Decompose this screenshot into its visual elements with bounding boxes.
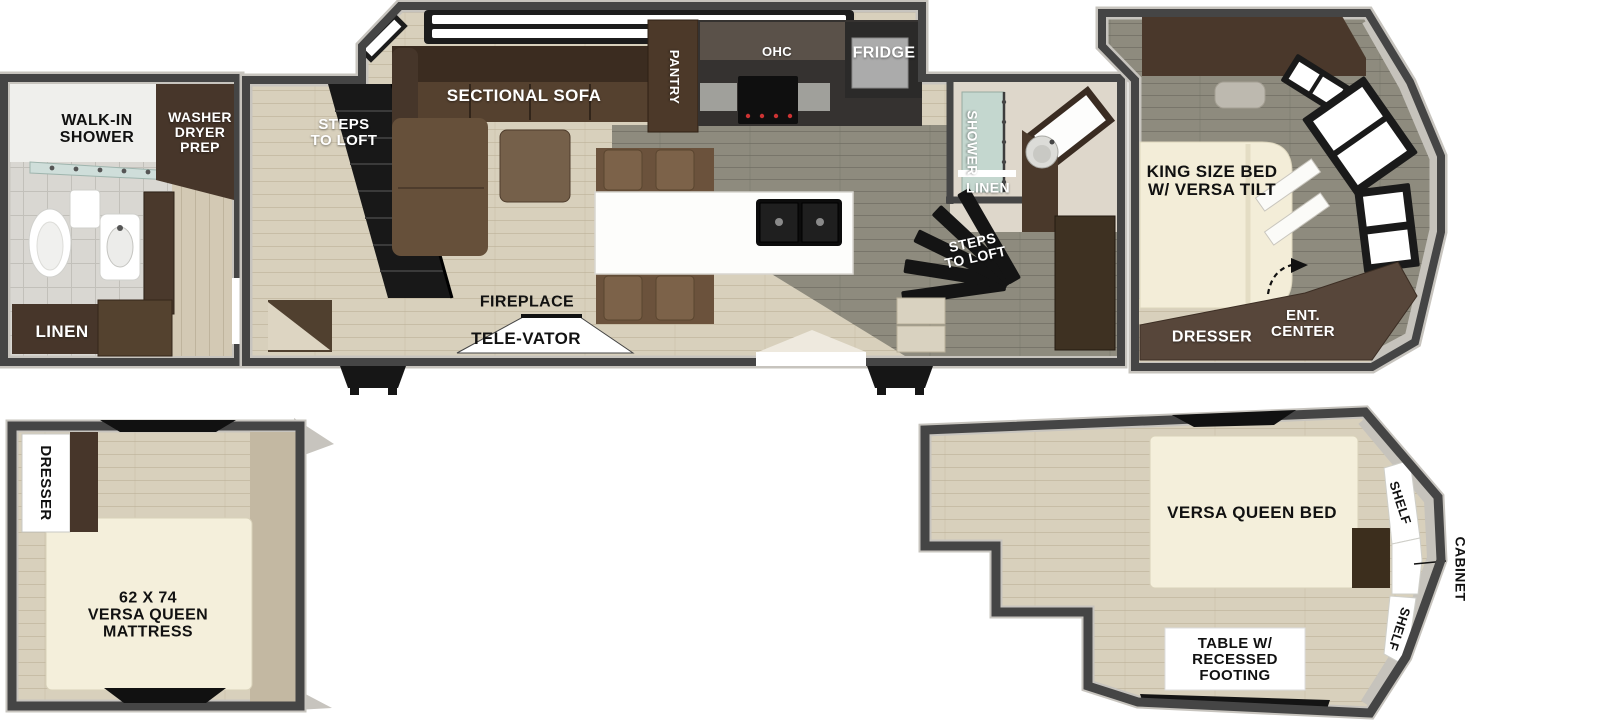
label-linen-rear: LINEN — [36, 323, 89, 341]
label-dresser-main: DRESSER — [1172, 330, 1252, 347]
pedestal-sink-icon — [100, 214, 140, 280]
label-linen-mid: LINEN — [966, 181, 1010, 196]
label-ohc: OHC — [762, 45, 792, 59]
rear-loft-stair-opening-top — [100, 420, 236, 432]
floorplan-canvas — [0, 0, 1600, 720]
rear-loft-stair-opening-bottom — [104, 688, 226, 703]
label-fridge: FRIDGE — [853, 46, 916, 63]
label-shower-mid: SHOWER — [965, 110, 980, 175]
wardrobe-cabinet — [1055, 216, 1115, 350]
label-fireplace: FIREPLACE — [480, 295, 574, 312]
label-cabinet: CABINET — [1453, 536, 1468, 601]
pillow-icon — [1215, 82, 1265, 108]
double-sink-icon — [756, 199, 842, 246]
label-sectional-sofa: SECTIONAL SOFA — [447, 87, 602, 105]
bedroom-overhead-cabinet — [1142, 16, 1366, 76]
round-sink-icon — [1026, 136, 1058, 168]
stove-icon — [738, 76, 798, 124]
label-ent-center: ENT.CENTER — [1271, 308, 1335, 340]
tall-cabinet — [144, 192, 174, 314]
front-loft-plan — [925, 410, 1446, 713]
exterior-entry-steps — [340, 366, 933, 395]
label-versa-queen-bed: VERSA QUEEN BED — [1167, 504, 1337, 522]
rear-loft-plan — [12, 418, 334, 710]
loft-sloped-wall — [250, 432, 296, 702]
label-washer-dryer-prep: WASHERDRYERPREP — [168, 110, 232, 154]
label-table-recessed: TABLE W/RECESSEDFOOTING — [1192, 636, 1278, 684]
label-dresser-loft: DRESSER — [37, 445, 53, 520]
front-loft-cabinet-box — [1352, 528, 1390, 588]
label-tele-vator: TELE-VATOR — [471, 330, 581, 348]
label-steps-to-loft-rear: STEPSTO LOFT — [311, 117, 378, 149]
label-walk-in-shower: WALK-INSHOWER — [60, 113, 134, 147]
front-window-low-icon — [1354, 183, 1420, 273]
kitchen-island — [595, 192, 853, 274]
label-pantry: PANTRY — [667, 50, 681, 104]
rear-loft-dresser-icon — [70, 432, 98, 532]
kitchen-counter — [648, 20, 922, 132]
rv-floorplan-diagram: WALK-INSHOWER WASHERDRYERPREP LINEN STEP… — [0, 0, 1600, 720]
label-king-bed: KING SIZE BEDW/ VERSA TILT — [1147, 163, 1278, 199]
entry-door-opening — [756, 352, 866, 366]
label-versa-queen-mattress: 62 X 74VERSA QUEENMATTRESS — [88, 591, 208, 642]
corner-cabinet — [98, 300, 172, 356]
